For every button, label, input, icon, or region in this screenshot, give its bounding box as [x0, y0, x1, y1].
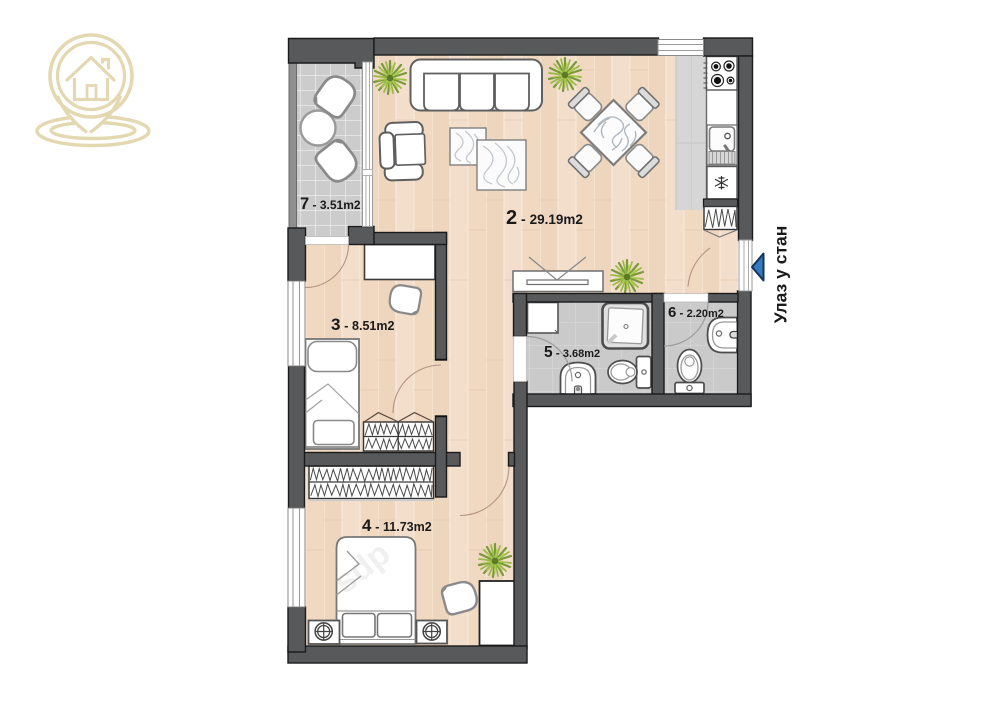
svg-text:7 - 3.51m2: 7 - 3.51m2: [300, 195, 361, 213]
svg-text:Улаз у стан: Улаз у стан: [771, 226, 791, 324]
